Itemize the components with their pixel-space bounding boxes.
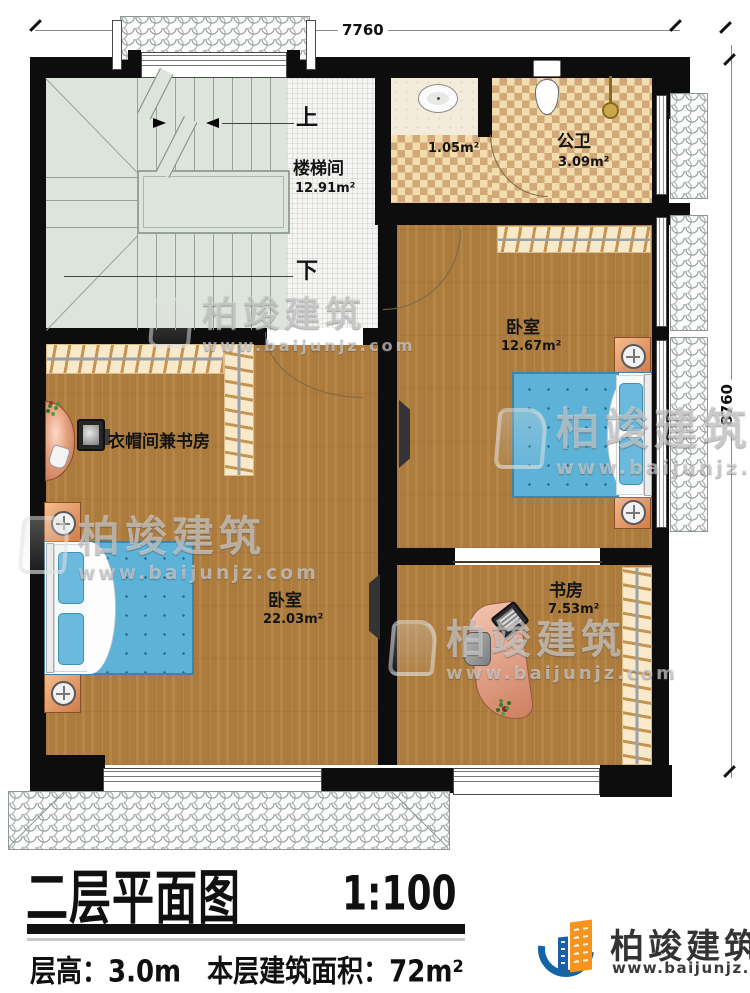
floor-info: 层高：3.0m 本层建筑面积：72m²	[30, 948, 464, 991]
logo-building-blue-icon	[558, 936, 568, 971]
logo-building-orange-icon	[570, 919, 592, 972]
dimension-label-height: 8760	[718, 380, 736, 430]
toilet-icon	[531, 60, 563, 118]
wall-bedroom-study-b	[600, 548, 668, 565]
wardrobe-bedroom-right	[497, 226, 651, 253]
sink-drain	[437, 97, 440, 100]
room-area-bedroom-left: 22.03m²	[263, 613, 323, 626]
nightstand	[614, 337, 651, 374]
window-glazing-lines	[659, 96, 667, 194]
opening-line-bedroom-study	[453, 561, 602, 563]
dormer-frame-left	[112, 20, 122, 70]
wardrobe-cloakroom-top	[46, 344, 224, 374]
stair-landing-line	[46, 227, 137, 228]
window-bottom-right	[453, 768, 600, 795]
dormer-frame-right	[306, 20, 316, 70]
stair-down-leader-line	[64, 276, 293, 277]
wall-stair-bathroom	[375, 57, 391, 205]
stair-down-label: 下	[296, 261, 318, 283]
table-lamp-icon	[621, 500, 646, 525]
dimension-tick	[719, 21, 732, 34]
window-right-1	[656, 95, 667, 195]
title-rule-thick	[27, 924, 465, 934]
dimension-tick	[723, 53, 736, 66]
bed-bedroom-right	[512, 372, 652, 498]
bed-headboard	[644, 374, 652, 496]
pillow	[58, 613, 84, 665]
room-label-stairwell: 楼梯间	[293, 161, 344, 178]
scale-label: 1:100	[342, 868, 457, 921]
sink-icon	[418, 84, 458, 113]
window-glazing-lines	[142, 55, 286, 69]
wardrobe-study	[622, 567, 652, 765]
monitor-screen	[83, 425, 99, 445]
room-label-bathroom: 公卫	[557, 134, 591, 151]
room-label-bedroom-right: 卧室	[506, 320, 540, 337]
dormer-jamb-left	[128, 50, 141, 78]
bed-bedroom-left	[44, 541, 194, 675]
wall-bottom-a	[30, 755, 105, 793]
pillow	[619, 437, 643, 485]
nightstand	[44, 672, 81, 713]
table-lamp-icon	[51, 511, 76, 536]
wardrobe-cloakroom-right	[224, 344, 254, 476]
balcony-roof-tiles-bottom	[8, 791, 450, 850]
window-glazing-lines	[659, 218, 667, 326]
logo-url-text: www.baijunjz.com	[612, 959, 750, 977]
monitor-screen	[498, 608, 522, 632]
pillow	[58, 552, 84, 604]
table-lamp-icon	[51, 681, 76, 706]
room-area-study: 7.53m²	[548, 603, 599, 616]
stair-up-label: 上	[296, 108, 318, 130]
floor-plan-canvas: 7760 8760	[0, 0, 750, 993]
stair-direction-arrow-icon	[153, 118, 166, 128]
room-area-bedroom-right: 12.67m²	[501, 340, 561, 353]
wall-bedroom-study-a	[397, 548, 455, 565]
plant-icon	[499, 703, 503, 707]
wall-top-b	[293, 57, 655, 78]
tv-icon-bedroom-left	[369, 574, 380, 640]
room-label-cloakroom-study: 衣帽间兼书房	[108, 434, 210, 451]
window-bottom-left	[103, 768, 322, 793]
roof-tiles-right-1	[670, 93, 708, 199]
room-area-bathroom: 3.09m²	[558, 156, 609, 169]
stair-void-rect	[137, 170, 290, 234]
window-right-2	[656, 217, 667, 327]
office-chair-icon	[463, 632, 491, 666]
table-lamp-icon	[621, 344, 646, 369]
roof-tiles-right-3	[670, 337, 708, 532]
wall-bottom-b	[322, 768, 453, 793]
plant-icon	[48, 404, 52, 408]
window-right-3	[656, 340, 667, 528]
wall-corner-bottom-right	[600, 765, 672, 797]
bed-headboard	[46, 543, 54, 673]
monitor-icon-cloakroom	[77, 419, 105, 451]
nightstand	[614, 493, 651, 529]
stair-direction-arrow-icon	[206, 118, 219, 128]
wall-below-bathroom	[375, 203, 690, 225]
room-area-stairwell: 12.91m²	[295, 182, 355, 195]
wall-below-stairwell	[30, 328, 267, 345]
toilet-bowl	[535, 79, 559, 115]
room-label-bedroom-left: 卧室	[268, 593, 302, 610]
wall-sink-alcove	[478, 57, 492, 137]
title-rule-thin	[27, 938, 465, 941]
dimension-tick	[723, 765, 736, 778]
brand-logo: 柏竣建筑 www.baijunjz.com	[538, 913, 748, 991]
room-area-corridor: 1.05m²	[428, 142, 479, 155]
window-glazing-lines	[454, 771, 599, 785]
toilet-tank	[533, 60, 561, 77]
stair-landing-line	[46, 200, 137, 201]
tv-icon-bedroom-right	[399, 400, 410, 468]
wall-stub-landing	[363, 328, 391, 345]
stair-treads-lower	[137, 234, 287, 330]
stair-landing-line	[46, 177, 137, 178]
nightstand	[44, 502, 81, 543]
dormer-jamb-right	[287, 50, 300, 78]
dimension-label-width: 7760	[338, 21, 388, 39]
roof-tiles-right-2	[670, 215, 708, 331]
pillow	[619, 383, 643, 431]
window-glazing-lines	[659, 341, 667, 527]
stair-up-leader-line	[222, 123, 294, 124]
shower-head-icon	[602, 102, 619, 119]
bed-blanket	[513, 373, 619, 497]
window-glazing-lines	[104, 771, 321, 785]
room-label-study: 书房	[549, 583, 583, 600]
